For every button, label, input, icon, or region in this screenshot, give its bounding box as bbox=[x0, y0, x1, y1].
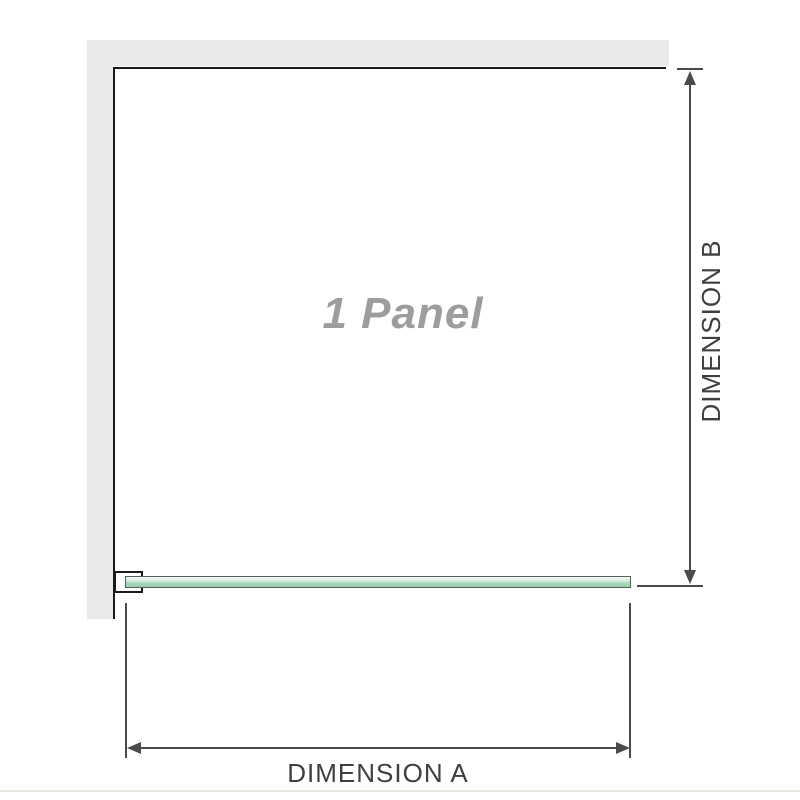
dimension-a-line bbox=[131, 747, 625, 749]
panel-count-label: 1 Panel bbox=[250, 291, 556, 337]
dimension-b-line bbox=[689, 80, 691, 577]
arrow-left-icon bbox=[127, 742, 141, 754]
shower-panel-diagram: 1 Panel DIMENSION B DIMENSION A bbox=[0, 0, 800, 800]
dimension-b-label: DIMENSION B bbox=[694, 131, 728, 531]
wall-inner-edge-top bbox=[113, 67, 666, 69]
arrow-down-icon bbox=[684, 570, 696, 584]
arrow-right-icon bbox=[616, 742, 630, 754]
glass-panel-bar bbox=[125, 576, 631, 588]
baseline-divider bbox=[0, 790, 800, 792]
dimension-a-extension-left bbox=[125, 603, 127, 758]
arrow-up-icon bbox=[684, 71, 696, 85]
wall-left-segment bbox=[87, 40, 113, 619]
wall-top-segment bbox=[87, 40, 669, 66]
dimension-b-top-tick bbox=[677, 68, 703, 70]
dimension-a-extension-right bbox=[629, 603, 631, 758]
dimension-b-bottom-tick bbox=[637, 585, 703, 587]
wall-inner-edge-left bbox=[113, 67, 115, 619]
dimension-a-label: DIMENSION A bbox=[178, 758, 578, 789]
